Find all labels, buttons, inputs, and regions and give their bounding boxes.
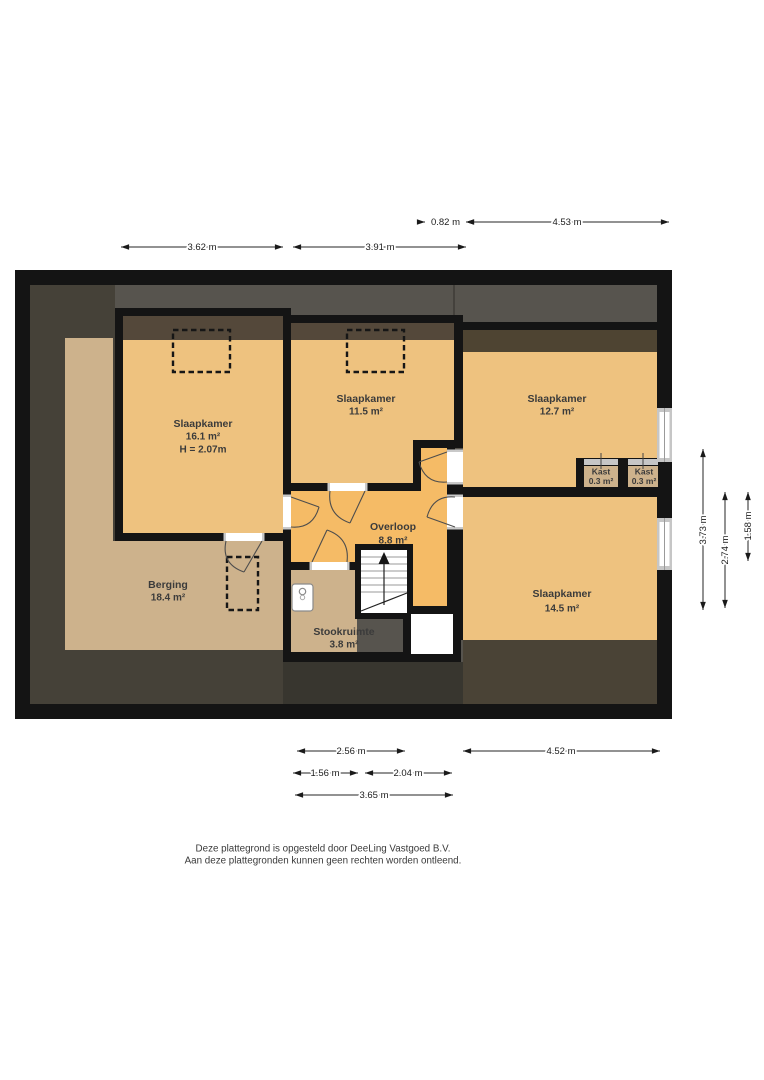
wall-segment (454, 315, 463, 447)
roof-bottom-middle (283, 662, 463, 705)
room-overloop-label: Overloop (370, 521, 416, 533)
door-jamb (447, 527, 463, 530)
door-opening (330, 483, 365, 491)
wall-segment (365, 483, 421, 491)
room-stookruimte-label: Stookruimte (313, 626, 374, 638)
wall-segment (283, 483, 330, 491)
wall-segment (458, 487, 672, 497)
wall-segment (291, 315, 463, 323)
dim-bottom-5: 3.65 m (359, 790, 388, 801)
wall-segment (447, 527, 455, 610)
dim-right-1: 3.73 m (698, 515, 709, 544)
room-slaapkamer4-floor (463, 497, 658, 640)
stairwell-void (411, 614, 453, 654)
window (657, 408, 672, 462)
room-overloop-floor (421, 448, 447, 491)
room-slaapkamer4-area: 14.5 m² (545, 604, 580, 615)
room-berging-label: Berging (148, 579, 188, 591)
room-slaapkamer1-label: Slaapkamer (174, 418, 233, 430)
room-berging-area: 18.4 m² (151, 593, 186, 604)
dim-bottom-4: 2.04 m (393, 768, 422, 779)
wall-segment (115, 308, 123, 541)
room-slaapkamer1-height: H = 2.07m (180, 445, 227, 456)
door-jamb (347, 562, 350, 570)
staircase (361, 550, 407, 613)
floor-plan-page: Slaapkamer 16.1 m² H = 2.07m Slaapkamer … (0, 0, 764, 1080)
roof-band-right (454, 284, 658, 322)
dim-bottom-3: 1.56 m (310, 768, 339, 779)
dimensions-top: 0.82 m 4.53 m 3.62 m 3.91 m (121, 217, 669, 253)
room-slaapkamer3-label: Slaapkamer (528, 393, 587, 405)
floor-plan-canvas: Slaapkamer 16.1 m² H = 2.07m Slaapkamer … (0, 0, 764, 1080)
room-kast2-label: Kast (635, 466, 654, 476)
room-overloop-area: 8.8 m² (379, 536, 409, 547)
dim-right-2: 2.74 m (720, 535, 731, 564)
wall-segment (115, 533, 226, 541)
door-opening (447, 452, 463, 482)
room-kast1-area: 0.3 m² (589, 476, 614, 486)
room-slaapkamer2-roof-strip (291, 323, 454, 340)
wall-segment (15, 704, 672, 719)
door-opening (312, 562, 347, 570)
room-kast2-area: 0.3 m² (632, 476, 657, 486)
wall-segment (15, 270, 30, 719)
dim-top-small: 0.82 m (431, 217, 460, 228)
wall-segment (454, 322, 658, 330)
door-jamb (447, 482, 463, 485)
window (657, 518, 672, 570)
room-overloop-floor (413, 562, 447, 606)
door-jamb (365, 483, 368, 491)
roof-bottom-left (29, 650, 283, 705)
room-slaapkamer2-floor (291, 340, 454, 440)
room-stookruimte-area: 3.8 m² (330, 640, 360, 651)
boiler-icon (292, 584, 313, 611)
door-jamb (310, 562, 313, 570)
wall-segment (115, 308, 291, 316)
dim-top-left: 3.62 m (187, 242, 216, 253)
footer-line-1: Deze plattegrond is opgesteld door DeeLi… (196, 844, 451, 855)
door-opening (283, 497, 291, 527)
dimensions-bottom: 2.56 m 4.52 m 1.56 m 2.04 m 3.65 m (293, 746, 660, 801)
door-opening (226, 533, 262, 541)
door-jamb (224, 533, 227, 541)
dimensions-right: 3.73 m 2.74 m 1.58 m (698, 449, 754, 610)
door-jamb (328, 483, 331, 491)
room-slaapkamer2-area: 11.5 m² (349, 407, 384, 418)
dim-bottom-2: 4.52 m (546, 746, 575, 757)
dim-right-3: 1.58 m (743, 511, 754, 540)
wall-segment (283, 527, 291, 662)
room-kast1-label: Kast (592, 466, 611, 476)
footer-disclaimer: Deze plattegrond is opgesteld door DeeLi… (185, 844, 462, 867)
wall-segment (283, 308, 291, 497)
dim-top-right: 4.53 m (552, 217, 581, 228)
wall-segment (15, 270, 672, 285)
room-slaapkamer1-roof-strip (123, 316, 283, 340)
room-slaapkamer3-roof-strip (463, 330, 658, 352)
room-slaapkamer4-label: Slaapkamer (533, 588, 592, 600)
footer-line-2: Aan deze plattegronden kunnen geen recht… (185, 856, 462, 867)
room-slaapkamer4-roof-strip (463, 640, 658, 705)
door-jamb (447, 450, 463, 453)
dim-top-mid: 3.91 m (365, 242, 394, 253)
room-slaapkamer2-label: Slaapkamer (337, 393, 396, 405)
wall-segment (283, 562, 312, 570)
room-slaapkamer2-floor (291, 440, 413, 483)
room-slaapkamer3-area: 12.7 m² (540, 407, 575, 418)
door-jamb (283, 527, 291, 530)
wall-segment (283, 652, 411, 662)
wall-segment (413, 440, 463, 448)
room-berging-floor (65, 338, 113, 541)
room-slaapkamer1-area: 16.1 m² (186, 432, 221, 443)
dim-bottom-1: 2.56 m (336, 746, 365, 757)
door-jamb (262, 533, 265, 541)
door-jamb (283, 495, 291, 498)
door-opening (447, 497, 463, 527)
